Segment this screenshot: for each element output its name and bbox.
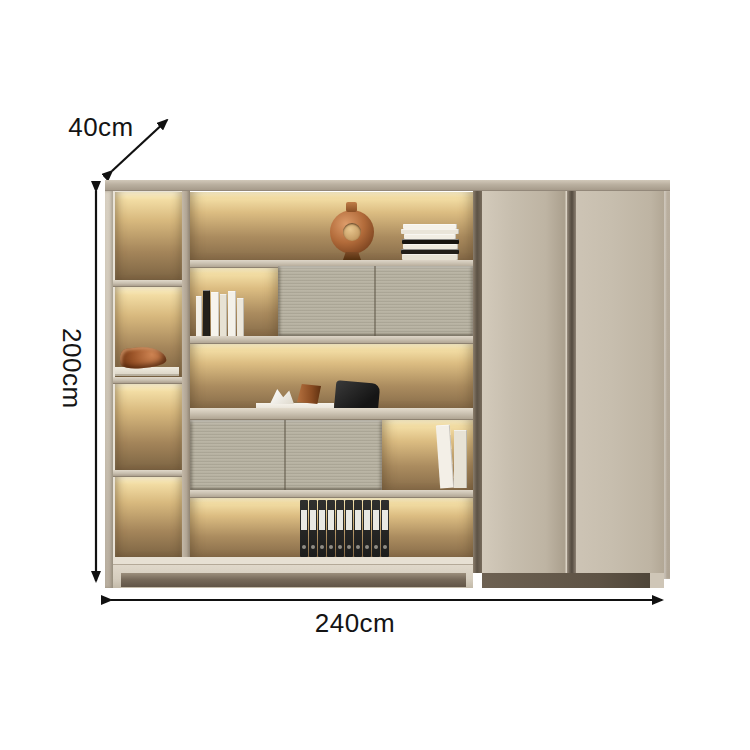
middle-shelf-row-3 (190, 344, 473, 408)
cabinet-top-board (105, 180, 670, 191)
binder (327, 500, 335, 557)
product-image: { "annotations": { "depth_label": "40cm"… (0, 0, 750, 750)
ornament-top-tab (346, 202, 357, 212)
leaning-books (438, 424, 476, 488)
left-compartment-3 (115, 384, 182, 470)
book-spine (454, 430, 467, 488)
ornament-stand (343, 252, 361, 260)
section-divider (473, 191, 482, 573)
book-spine (211, 292, 219, 336)
right-cabinet-door-left (482, 191, 567, 573)
toe-kick-recess (121, 573, 466, 587)
left-shelf-board (113, 280, 190, 287)
book-spine (228, 291, 236, 336)
binder-row (300, 500, 394, 557)
binder (336, 500, 344, 557)
left-compartment-4 (115, 477, 182, 557)
plinth-right-post (650, 573, 664, 588)
copper-ring-ornament (330, 210, 374, 254)
decor-book (115, 367, 179, 376)
cabinet-left-side-panel (105, 191, 113, 588)
binder (345, 500, 353, 557)
book-spine (203, 290, 210, 336)
binder (300, 500, 308, 557)
door-handle-groove (567, 191, 576, 573)
middle-shelf-board (190, 336, 473, 344)
right-cabinet-door-right (576, 191, 664, 573)
drawer-top-board (190, 408, 473, 420)
door-seam (374, 266, 376, 336)
fluted-cabinet-door-upper (278, 266, 473, 336)
binder (309, 500, 317, 557)
cabinet-bottom-board (113, 557, 473, 565)
cabinet-right-side-panel (664, 191, 670, 579)
height-dimension-label: 200cm (56, 328, 87, 428)
left-shelf-board (113, 470, 190, 477)
depth-dimension-label: 40cm (60, 112, 142, 143)
book-spine (237, 298, 244, 336)
door-toe-kick (482, 573, 650, 588)
left-shelf-board (113, 377, 190, 384)
standing-books (196, 290, 248, 336)
book-spine (436, 425, 454, 489)
binder (354, 500, 362, 557)
binder (381, 500, 389, 557)
left-compartment-1 (115, 192, 182, 280)
middle-shelf-board (190, 490, 473, 498)
book-spine (196, 296, 202, 336)
column-divider (182, 191, 190, 557)
width-dimension-label: 240cm (300, 608, 410, 639)
drawer-seam (284, 420, 286, 490)
bookshelf-cabinet (105, 180, 670, 590)
binder (363, 500, 371, 557)
fluted-drawer-lower (190, 420, 382, 490)
binder (318, 500, 326, 557)
ornament-hole (343, 223, 361, 241)
stacked-books (400, 224, 460, 260)
binder (372, 500, 380, 557)
book-spine (220, 294, 227, 336)
